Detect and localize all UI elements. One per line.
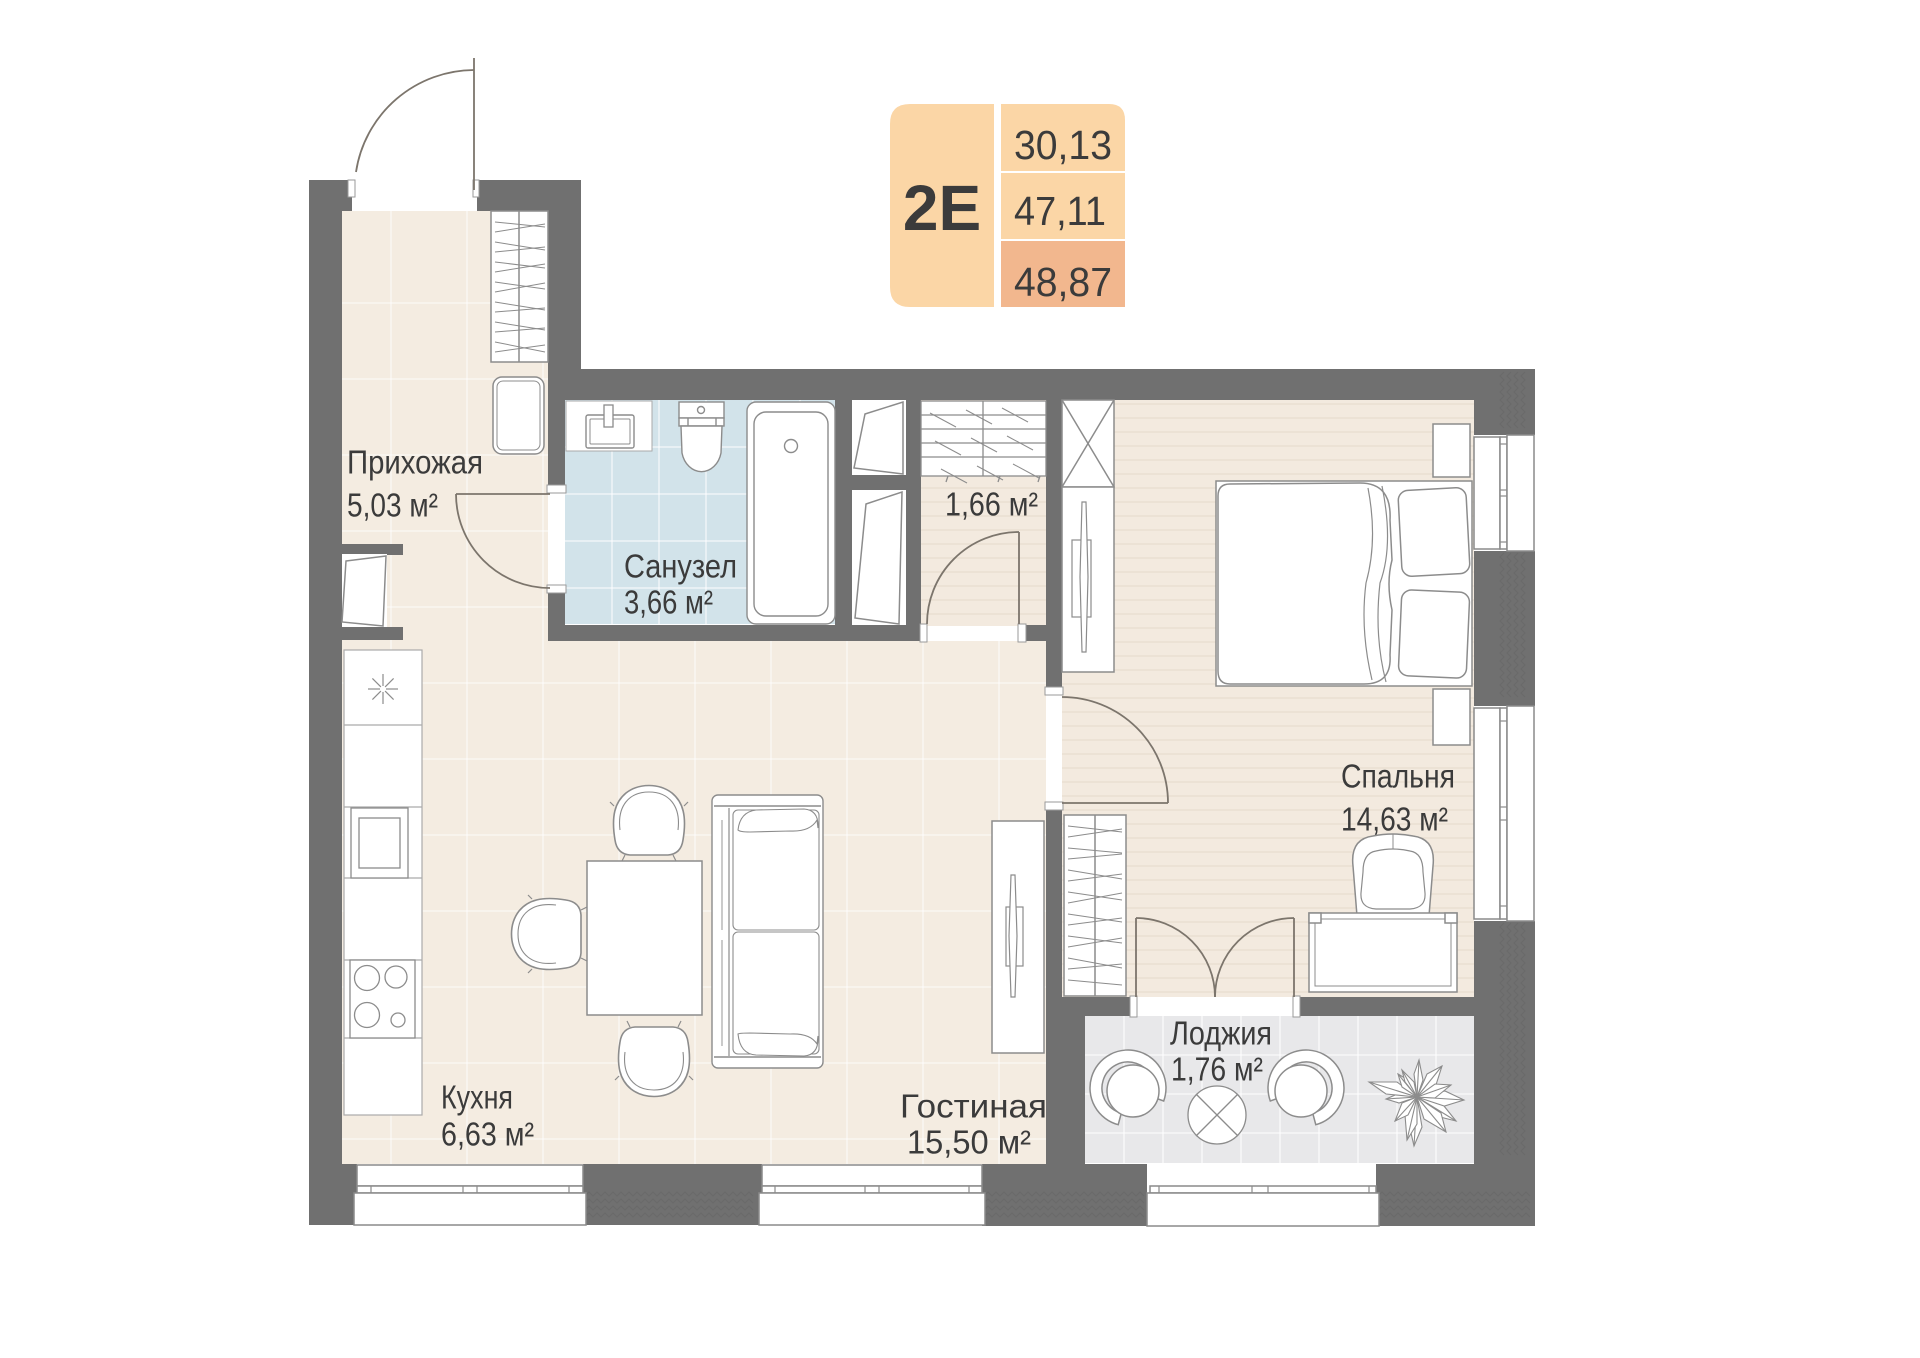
svg-text:48,87: 48,87 [1014,259,1112,305]
svg-text:Санузел: Санузел [624,548,737,585]
svg-text:1,76 м²: 1,76 м² [1171,1051,1263,1088]
svg-text:Лоджия: Лоджия [1170,1015,1272,1052]
svg-text:Кухня: Кухня [441,1079,513,1116]
svg-text:1,66 м²: 1,66 м² [945,486,1038,523]
svg-text:2E: 2E [903,172,981,244]
svg-text:5,03 м²: 5,03 м² [347,487,438,524]
svg-text:15,50 м²: 15,50 м² [907,1124,1031,1161]
svg-text:Прихожая: Прихожая [347,444,483,481]
svg-text:6,63 м²: 6,63 м² [441,1116,534,1153]
svg-text:3,66 м²: 3,66 м² [624,584,713,621]
svg-text:Спальня: Спальня [1341,758,1455,795]
svg-text:14,63 м²: 14,63 м² [1341,801,1448,838]
svg-text:47,11: 47,11 [1014,188,1106,234]
svg-text:Гостиная: Гостиная [900,1088,1047,1125]
svg-text:30,13: 30,13 [1014,122,1112,168]
